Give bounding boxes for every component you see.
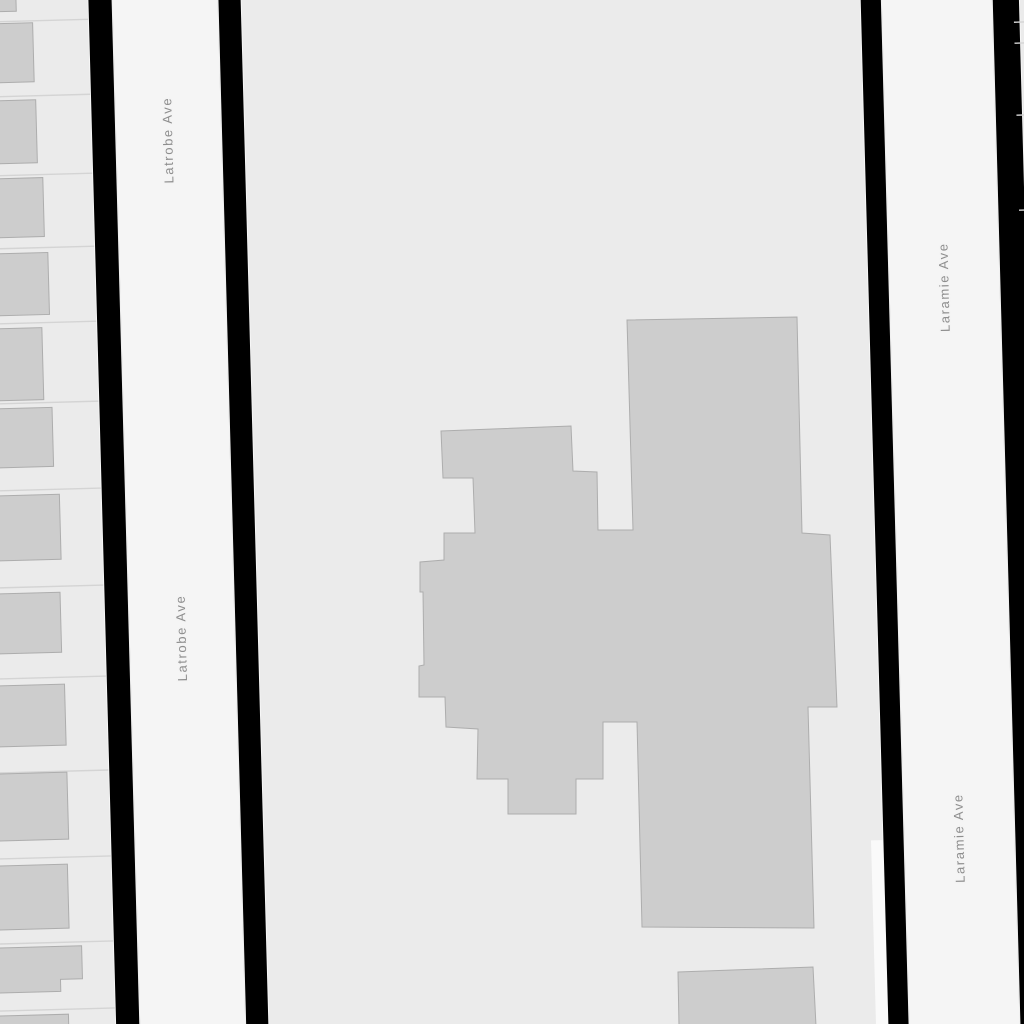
building-footprint [0, 1014, 70, 1024]
building-footprint [0, 100, 37, 165]
street-name-label: Latrobe Ave [173, 594, 190, 681]
building-footprint [0, 407, 54, 468]
street-name-label: Laramie Ave [935, 242, 952, 332]
building-footprint [0, 772, 69, 841]
building-footprint [0, 592, 62, 654]
building-footprint [0, 23, 34, 84]
street-name-label: Latrobe Ave [159, 97, 176, 184]
building-footprint [0, 0, 16, 13]
map-canvas[interactable]: Latrobe AveLatrobe AveLaramie AveLaramie… [0, 0, 1024, 1024]
building-footprint [0, 494, 61, 561]
building-footprint [0, 328, 44, 402]
street-name-label: Laramie Ave [950, 793, 967, 883]
building-footprint [0, 864, 69, 930]
building-footprint [0, 684, 66, 747]
building-footprint [0, 252, 49, 316]
building-footprint [678, 967, 816, 1024]
map-svg: Latrobe AveLatrobe AveLaramie AveLaramie… [0, 0, 1024, 1024]
building-footprint [0, 178, 44, 239]
